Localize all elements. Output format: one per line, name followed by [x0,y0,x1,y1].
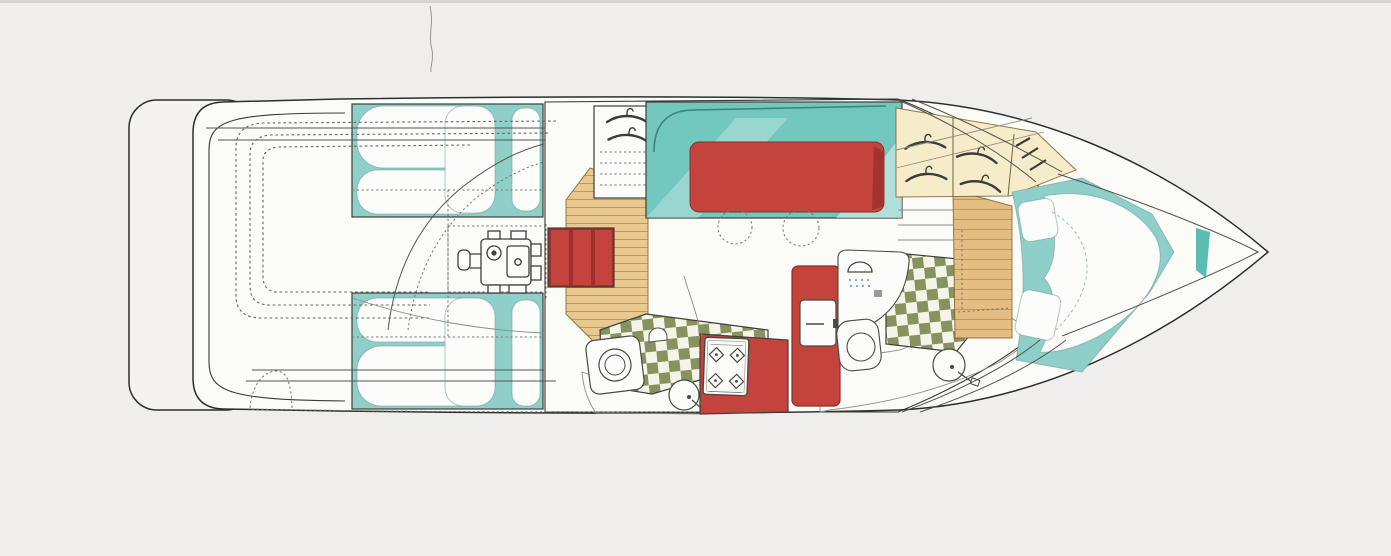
duvet [445,298,495,406]
drain-icon [874,290,882,297]
door-panel [800,300,838,346]
pillow [512,108,540,211]
toilet [836,318,883,372]
table-shadow [872,146,884,210]
floorplan-drawing [0,0,1391,556]
salon-dinette [646,102,902,218]
pillow [1017,197,1059,243]
galley-sink [585,335,645,395]
faucet-icon [649,328,667,342]
dinette-table [690,142,884,212]
scan-top-edge [0,0,1391,3]
scanned-floorplan-page [0,0,1391,556]
pillow [512,300,540,406]
companionway-steps [548,228,614,287]
galley-stove [703,337,749,396]
